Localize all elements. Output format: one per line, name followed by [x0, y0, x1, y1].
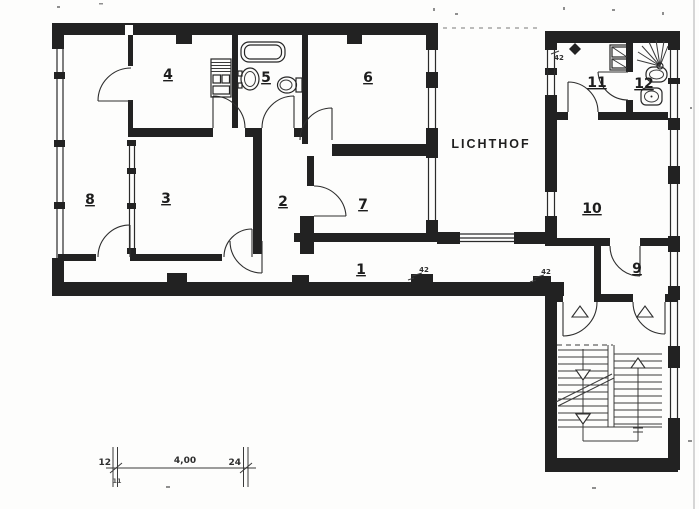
dimension-line: 12 4,00 24 11: [98, 447, 256, 487]
wall-segment: [545, 95, 557, 192]
room-label-3: 3: [161, 191, 171, 207]
wall-segment: [545, 31, 678, 43]
wall-segment: [128, 128, 213, 137]
wall-note-42: 42: [541, 268, 551, 276]
chimney-marker: [569, 43, 581, 55]
door-arc: [213, 96, 245, 128]
wall-segment: [52, 23, 438, 35]
wall-segment: [130, 254, 222, 261]
chimney-bump: [347, 35, 362, 44]
washbasin: [238, 68, 259, 90]
room-label-9: 9: [632, 261, 642, 277]
wall-segment: [668, 166, 680, 184]
door-arc: [262, 96, 294, 128]
window-mullion: [54, 140, 65, 147]
wall-segment: [668, 346, 680, 368]
room-label-10: 10: [582, 201, 602, 217]
room-label-6: 6: [363, 70, 373, 86]
wall-segment: [253, 136, 262, 254]
entrance-door-arc: [633, 302, 665, 334]
wall-note-42: 42: [419, 266, 429, 274]
wall-segment: [545, 294, 563, 302]
wall-segment: [128, 35, 133, 66]
water-heater-sunburst: [637, 40, 668, 69]
room-label-8: 8: [85, 192, 95, 208]
wall-segment: [332, 144, 428, 156]
chimney-bump: [176, 35, 192, 44]
room-label-5: 5: [261, 70, 271, 86]
floorplan-svg: LICHTHOF: [0, 0, 699, 509]
room-label-4: 4: [163, 67, 173, 83]
wall-segment: [598, 112, 668, 120]
partition-mullion: [127, 248, 136, 254]
wall-segment: [52, 23, 64, 49]
stair-arrow-up: [631, 358, 645, 368]
wall-segment: [437, 232, 460, 244]
partition-mullion: [127, 203, 136, 209]
corridor-window: [460, 234, 514, 242]
wall-segment: [128, 100, 133, 131]
wall-segment: [426, 23, 438, 50]
entry-arrow: [637, 306, 653, 317]
chimney-bump: [167, 273, 187, 282]
window-mullion: [668, 78, 680, 84]
window-mullion: [54, 72, 65, 79]
wall-segment: [514, 232, 545, 244]
bathtub: [241, 42, 285, 62]
window-band: [57, 49, 63, 258]
stair-break-line: [556, 374, 614, 406]
wall-segment: [52, 282, 564, 296]
dim-span: 4,00: [174, 456, 196, 466]
room-label-1: 1: [356, 262, 366, 278]
left-building-partitions: [58, 35, 428, 261]
window-mullion: [545, 68, 557, 75]
wall-note-42: 42: [554, 54, 564, 62]
room-label-11: 11: [587, 75, 606, 91]
wall-segment: [300, 216, 314, 254]
wall-segment: [426, 72, 438, 88]
door-arc: [224, 229, 252, 257]
wall-segment: [640, 238, 668, 246]
wall-segment: [545, 282, 557, 470]
wall-segment: [668, 236, 680, 252]
bathroom-fixtures-left: [211, 42, 302, 97]
wall-segment: [58, 254, 96, 261]
dim-right-offset: 24: [228, 458, 241, 468]
wall-segment: [597, 294, 633, 302]
kitchen-stove: [211, 59, 231, 97]
wall-segment: [232, 35, 238, 128]
staircase: [556, 345, 662, 441]
pier-bump: [292, 275, 309, 282]
partition-mullion: [127, 168, 136, 174]
stair-arrow-down: [576, 414, 590, 424]
wall-segment: [545, 31, 557, 50]
wall-notch: [125, 25, 133, 35]
dim-left-offset: 12: [98, 458, 111, 468]
wall-segment: [545, 112, 568, 120]
door-arc: [314, 186, 346, 216]
lichthof-courtyard: LICHTHOF: [443, 28, 537, 151]
wall-segment: [668, 31, 680, 50]
door-arc: [98, 68, 131, 101]
lichthof-label: LICHTHOF: [451, 137, 530, 151]
window-mullion: [54, 202, 65, 209]
wall-segment: [594, 246, 601, 302]
partition-mullion: [127, 140, 136, 146]
toilet: [278, 77, 303, 93]
wall-segment: [245, 128, 262, 137]
wall-segment: [294, 233, 437, 242]
room-label-7: 7: [358, 197, 368, 213]
wall-segment: [545, 238, 610, 246]
entry-arrow: [572, 306, 588, 317]
door-arc: [98, 225, 130, 257]
room-label-2: 2: [278, 194, 288, 210]
scanned-floorplan-page: LICHTHOF: [0, 0, 699, 509]
wall-segment: [545, 458, 678, 472]
wall-segment: [307, 156, 314, 186]
wall-segment: [668, 118, 680, 130]
wall-segment: [665, 294, 678, 302]
room-label-12: 12: [634, 76, 653, 92]
dim-tick-note: 11: [112, 477, 122, 485]
